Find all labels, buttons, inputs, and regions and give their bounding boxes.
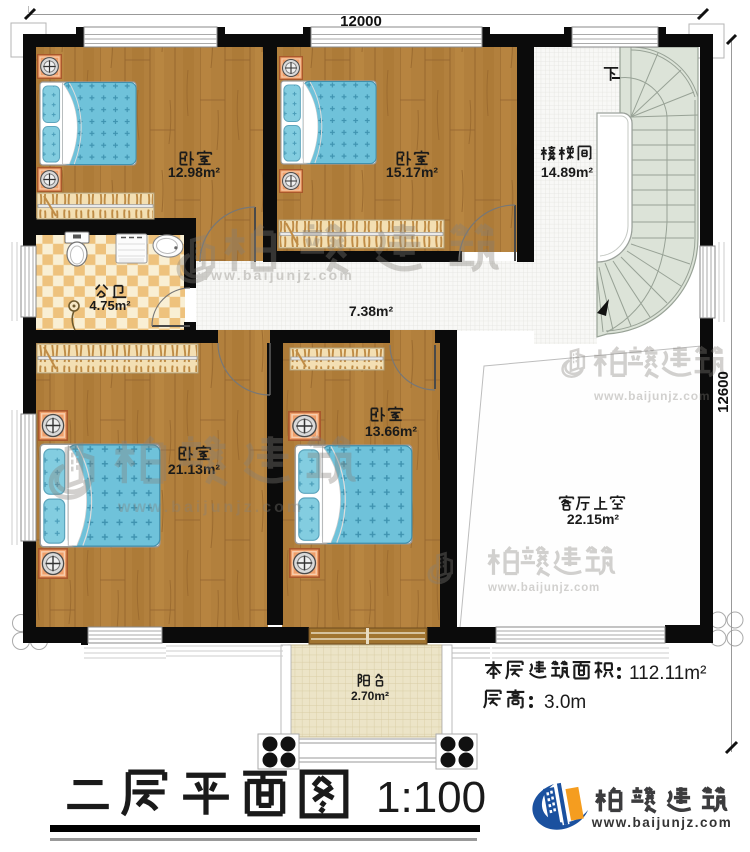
svg-text:www.baijunjz.com: www.baijunjz.com bbox=[593, 389, 710, 403]
svg-text:4.75m²: 4.75m² bbox=[89, 298, 131, 313]
svg-text:3.0m: 3.0m bbox=[544, 692, 586, 713]
svg-text:www.baijunjz.com: www.baijunjz.com bbox=[117, 499, 304, 516]
svg-text:1:100: 1:100 bbox=[376, 773, 486, 822]
svg-text:15.17m²: 15.17m² bbox=[386, 164, 438, 180]
svg-text:112.11m²: 112.11m² bbox=[629, 663, 706, 684]
svg-text:2.70m²: 2.70m² bbox=[351, 689, 389, 703]
svg-text:www.baijunjz.com: www.baijunjz.com bbox=[591, 815, 733, 830]
svg-text:14.89m²: 14.89m² bbox=[541, 164, 593, 180]
svg-text:12.98m²: 12.98m² bbox=[168, 164, 220, 180]
svg-text:7.38m²: 7.38m² bbox=[349, 303, 394, 319]
svg-text:12000: 12000 bbox=[340, 13, 382, 30]
svg-text:www.baijunjz.com: www.baijunjz.com bbox=[487, 582, 600, 594]
svg-text:13.66m²: 13.66m² bbox=[365, 423, 417, 439]
svg-text:22.15m²: 22.15m² bbox=[567, 511, 619, 527]
svg-text:12600: 12600 bbox=[715, 371, 732, 413]
svg-text:www.baijunjz.com: www.baijunjz.com bbox=[197, 267, 354, 283]
